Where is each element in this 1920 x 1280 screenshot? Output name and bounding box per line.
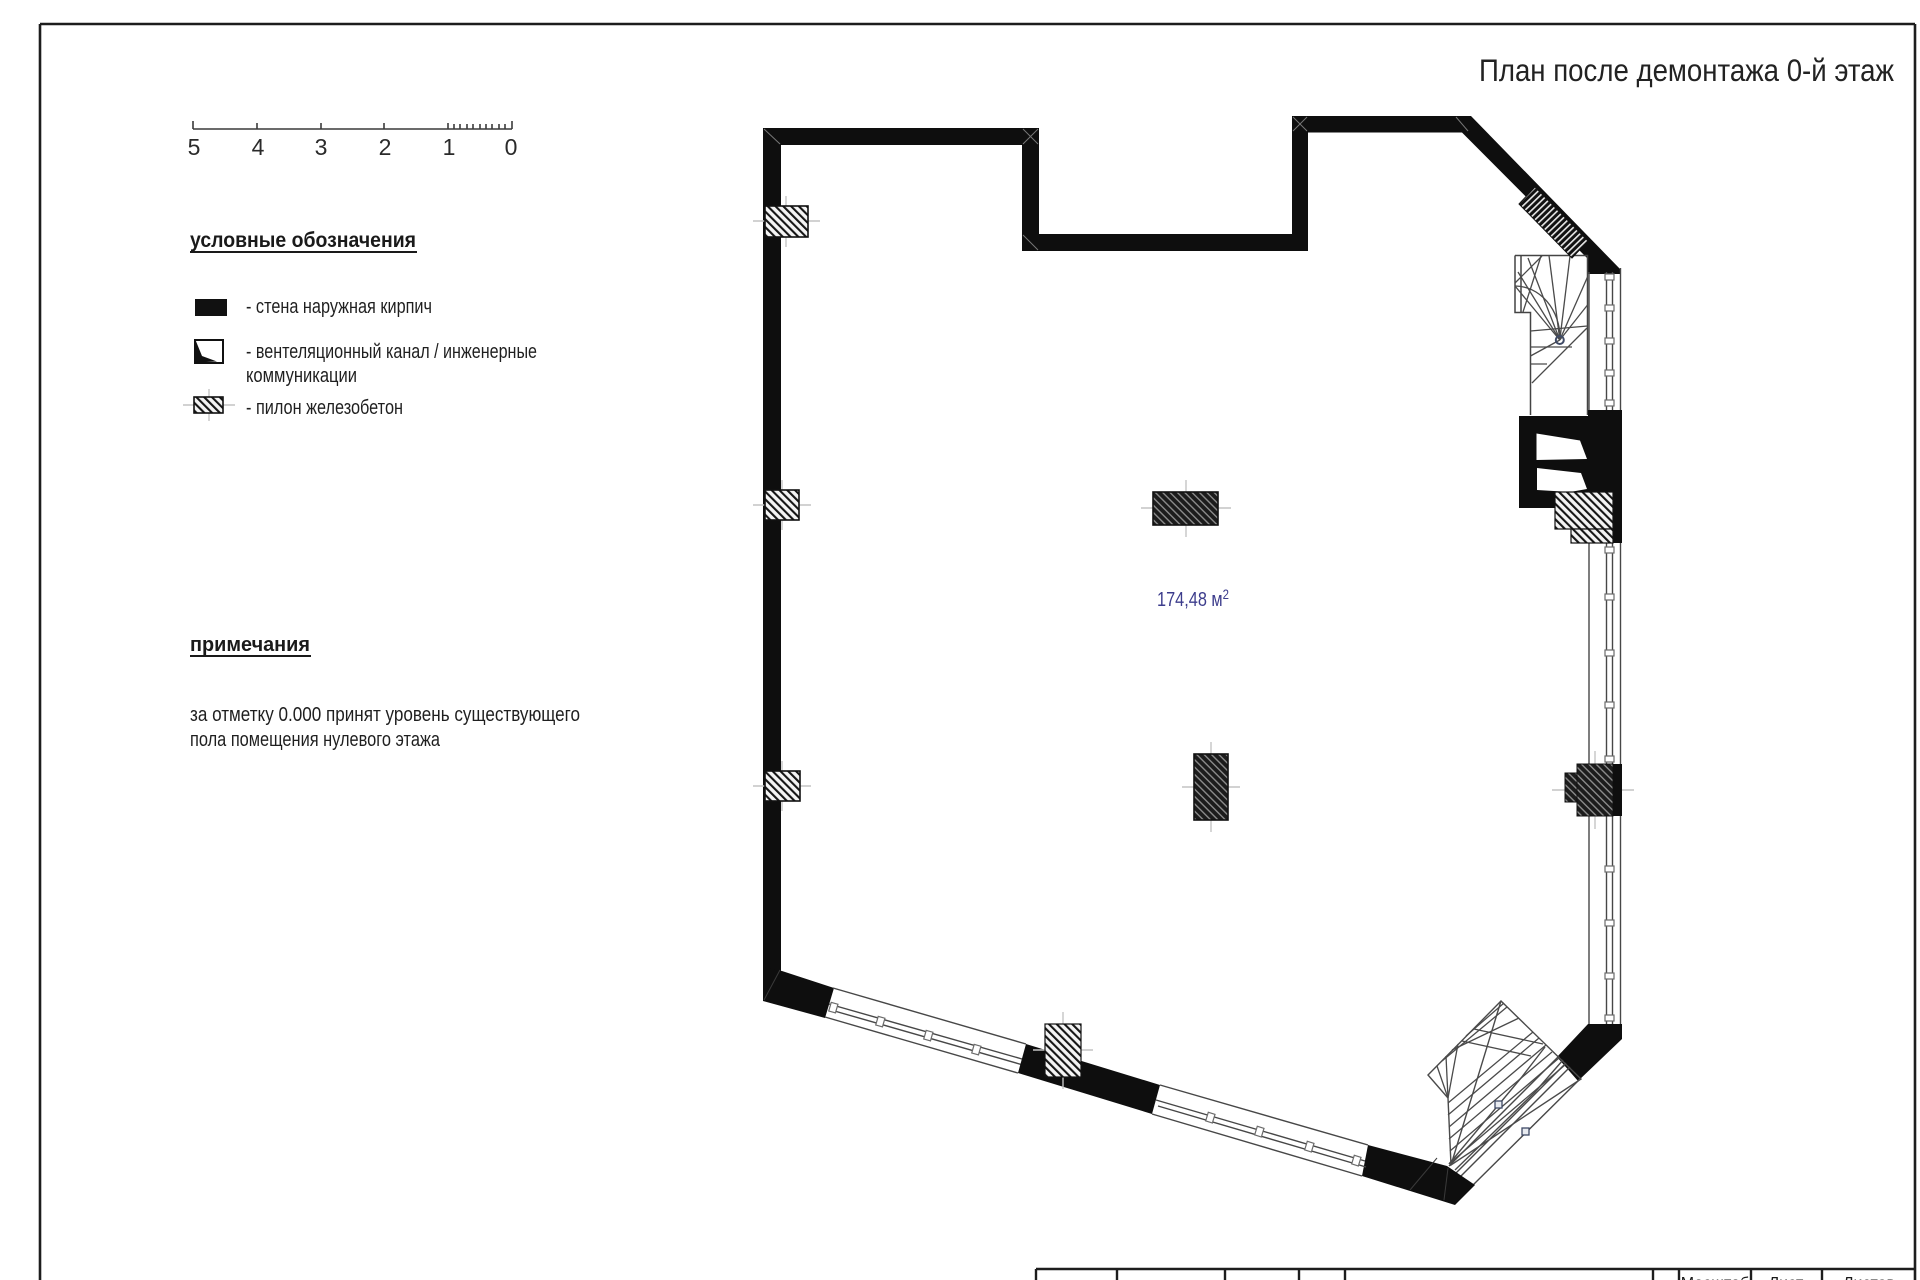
- svg-text:План после демонтажа 0-й этаж: План после демонтажа 0-й этаж: [1479, 52, 1894, 88]
- svg-text:коммуникации: коммуникации: [246, 365, 357, 387]
- svg-text:- вентеляционный канал / инжен: - вентеляционный канал / инженерные: [246, 341, 537, 363]
- svg-text:условные обозначения: условные обозначения: [190, 229, 416, 252]
- svg-text:4: 4: [252, 134, 265, 160]
- svg-text:Лист: Лист: [1769, 1275, 1804, 1280]
- svg-text:2: 2: [379, 134, 392, 160]
- svg-text:3: 3: [315, 134, 328, 160]
- svg-text:0: 0: [505, 134, 518, 160]
- svg-text:примечания: примечания: [190, 634, 310, 656]
- svg-text:за отметку 0.000 принят уров: за отметку 0.000 принят уровень существу…: [190, 704, 580, 726]
- svg-text:1: 1: [443, 134, 456, 160]
- svg-text:- пилон железобетон: - пилон железобетон: [246, 397, 403, 419]
- svg-text:Листов: Листов: [1843, 1275, 1895, 1280]
- svg-text:- стена наружная кирпич: - стена наружная кирпич: [246, 296, 432, 318]
- svg-text:пола помещения нулевого этажа: пола помещения нулевого этажа: [190, 729, 441, 751]
- svg-text:5: 5: [188, 134, 201, 160]
- svg-text:174,48 м2: 174,48 м2: [1157, 586, 1229, 611]
- svg-text:Масштаб: Масштаб: [1681, 1275, 1749, 1280]
